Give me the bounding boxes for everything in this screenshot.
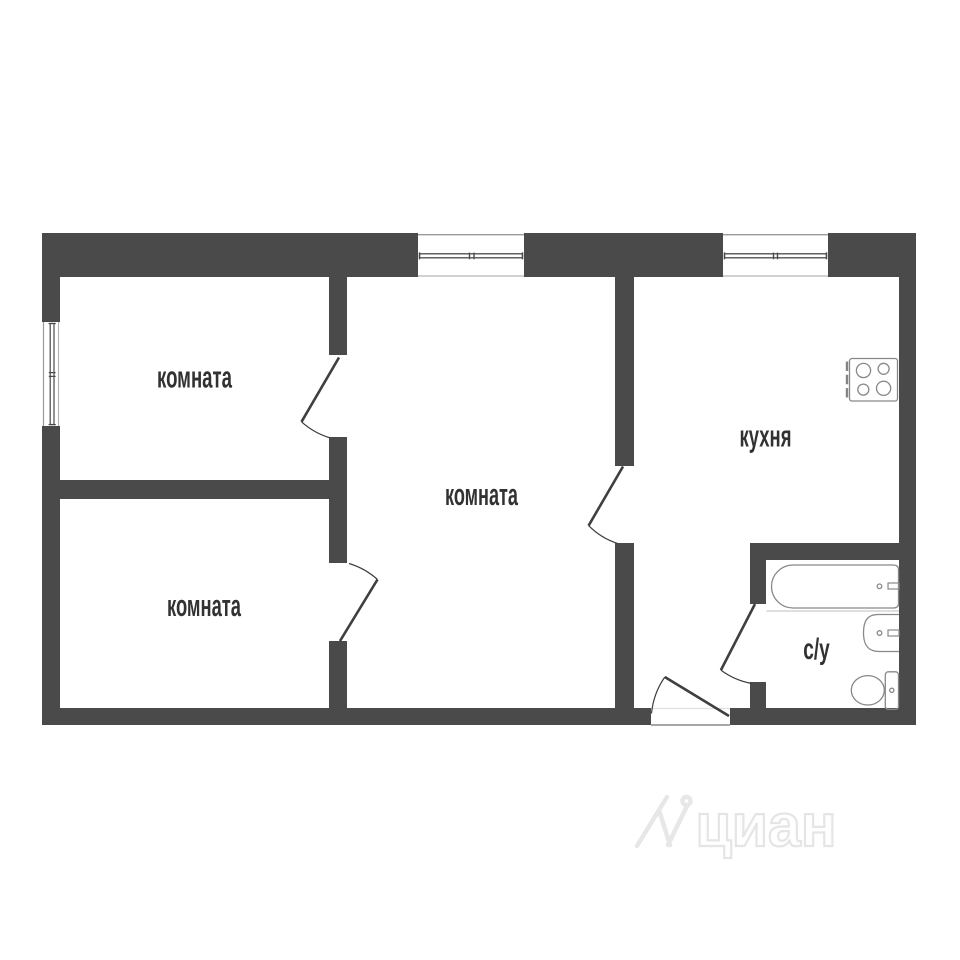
svg-text:комната: комната [157,360,232,395]
svg-text:кухня: кухня [740,418,792,453]
svg-text:с/у: с/у [803,633,830,666]
svg-text:циан: циан [696,792,837,859]
svg-text:комната: комната [167,588,241,623]
svg-text:комната: комната [445,477,518,512]
